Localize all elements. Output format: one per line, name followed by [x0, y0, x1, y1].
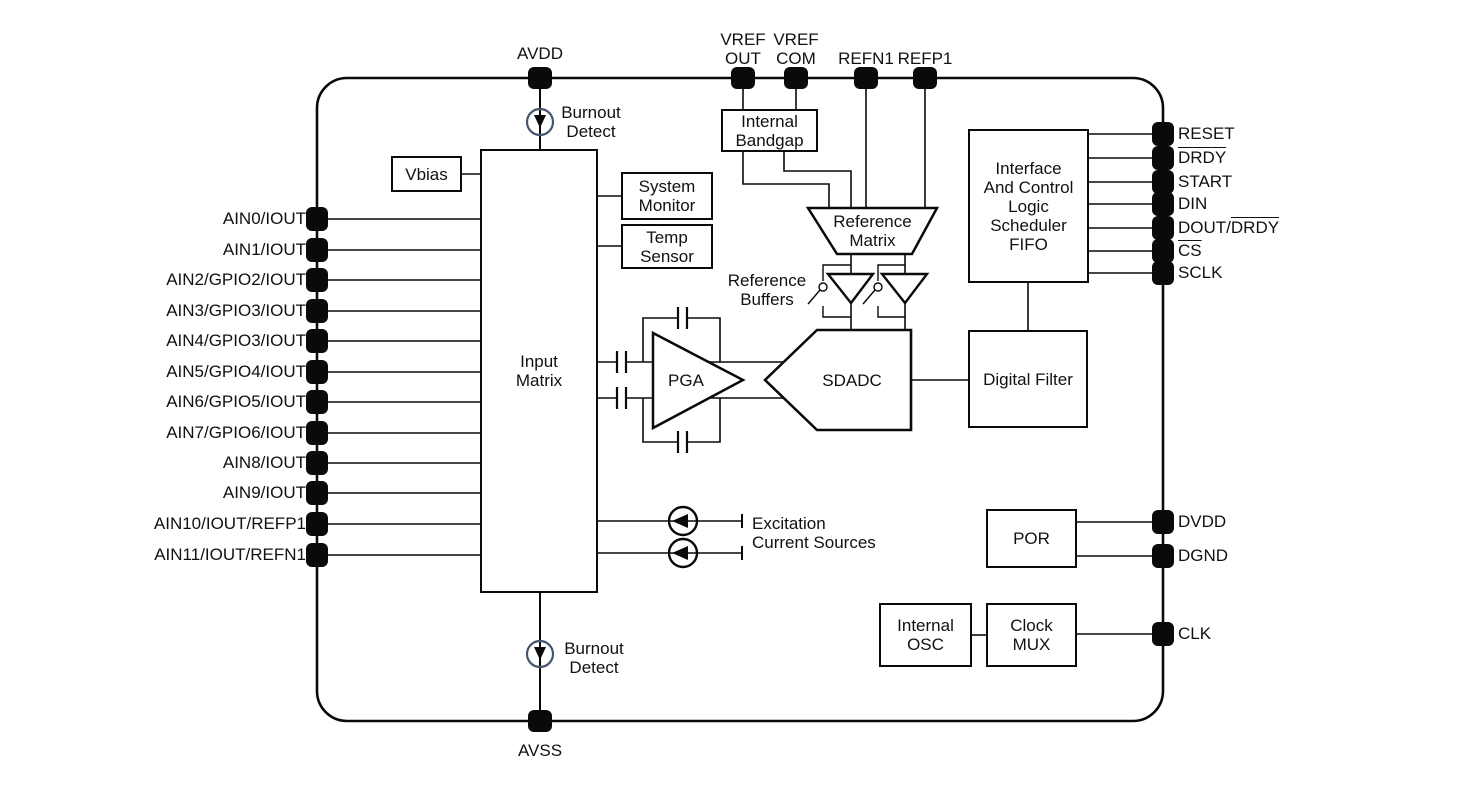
- pin-label-ain7: AIN7/GPIO6/IOUT: [100, 423, 306, 442]
- pin-label-refp1: REFP1: [890, 49, 960, 68]
- pin-sclk: [1152, 261, 1174, 285]
- pin-label-ain2: AIN2/GPIO2/IOUT: [100, 270, 306, 289]
- excitation-source-symbols: [669, 507, 697, 567]
- pin-reset: [1152, 122, 1174, 146]
- burnout-detect-bottom-label: Burnout Detect: [551, 639, 637, 677]
- block-por: POR: [986, 509, 1077, 568]
- pin-ain2: [306, 268, 328, 292]
- pin-label-ain9: AIN9/IOUT: [100, 483, 306, 502]
- pin-label-cs: CS: [1178, 241, 1202, 260]
- pin-ain10: [306, 512, 328, 536]
- pin-label-ain10: AIN10/IOUT/REFP1: [100, 514, 306, 533]
- pin-label-ain4: AIN4/GPIO3/IOUT: [100, 331, 306, 350]
- pin-ain0: [306, 207, 328, 231]
- pin-ain7: [306, 421, 328, 445]
- pin-ain3: [306, 299, 328, 323]
- pga-label: PGA: [655, 370, 717, 390]
- block-internal-bandgap: Internal Bandgap: [721, 109, 818, 152]
- pin-label-avss: AVSS: [505, 741, 575, 760]
- block-digital-filter: Digital Filter: [968, 330, 1088, 428]
- pin-label-ain6: AIN6/GPIO5/IOUT: [100, 392, 306, 411]
- pin-label-clk: CLK: [1178, 624, 1211, 643]
- pin-refn1: [854, 67, 878, 89]
- pin-refp1: [913, 67, 937, 89]
- block-system-monitor: System Monitor: [621, 172, 713, 220]
- reference-matrix-label: Reference Matrix: [808, 210, 937, 252]
- pin-label-reset: RESET: [1178, 124, 1235, 143]
- reference-buffer-2-amp: [882, 274, 927, 303]
- pin-ain9: [306, 481, 328, 505]
- pin-label-dgnd: DGND: [1178, 546, 1228, 565]
- pin-ain6: [306, 390, 328, 414]
- pin-cs: [1152, 239, 1174, 263]
- pin-drdy: [1152, 146, 1174, 170]
- pin-label-dvdd: DVDD: [1178, 512, 1226, 531]
- pin-label-ain3: AIN3/GPIO3/IOUT: [100, 301, 306, 320]
- pin-ain1: [306, 238, 328, 262]
- pin-label-avdd: AVDD: [505, 44, 575, 63]
- pin-ain8: [306, 451, 328, 475]
- pin-label-sclk: SCLK: [1178, 263, 1222, 282]
- block-vbias: Vbias: [391, 156, 462, 192]
- pin-ain5: [306, 360, 328, 384]
- pin-ain4: [306, 329, 328, 353]
- block-temp-sensor: Temp Sensor: [621, 224, 713, 269]
- block-diagram: Vbias Input Matrix System Monitor Temp S…: [0, 0, 1467, 796]
- block-internal-osc: Internal OSC: [879, 603, 972, 667]
- block-interface-control: Interface And Control Logic Scheduler FI…: [968, 129, 1089, 283]
- pin-label-ain5: AIN5/GPIO4/IOUT: [100, 362, 306, 381]
- pin-dout-drdy: [1152, 216, 1174, 240]
- burnout-detect-top-label: Burnout Detect: [548, 103, 634, 141]
- pin-ain11: [306, 543, 328, 567]
- reference-buffers-label: Reference Buffers: [724, 271, 810, 309]
- pin-label-din: DIN: [1178, 194, 1207, 213]
- pin-avdd: [528, 67, 552, 89]
- pin-label-ain11: AIN11/IOUT/REFN1: [100, 545, 306, 564]
- pin-din: [1152, 192, 1174, 216]
- sdadc-label: SDADC: [812, 370, 892, 390]
- pin-label-drdy: DRDY: [1178, 148, 1226, 167]
- pin-dgnd: [1152, 544, 1174, 568]
- pin-vref-out: [731, 67, 755, 89]
- pin-dvdd: [1152, 510, 1174, 534]
- pin-clk: [1152, 622, 1174, 646]
- pin-avss: [528, 710, 552, 732]
- pin-vref-com: [784, 67, 808, 89]
- pin-label-ain0: AIN0/IOUT: [100, 209, 306, 228]
- block-clock-mux: Clock MUX: [986, 603, 1077, 667]
- pin-label-dout-drdy: DOUT/DRDY: [1178, 218, 1279, 237]
- pin-label-ain8: AIN8/IOUT: [100, 453, 306, 472]
- pin-label-start: START: [1178, 172, 1232, 191]
- pin-start: [1152, 170, 1174, 194]
- pin-label-vref-com: VREF COM: [761, 30, 831, 68]
- pin-label-ain1: AIN1/IOUT: [100, 240, 306, 259]
- block-input-matrix: Input Matrix: [480, 149, 598, 593]
- excitation-current-sources-label: Excitation Current Sources: [752, 514, 892, 552]
- reference-buffer-1-amp: [828, 274, 873, 303]
